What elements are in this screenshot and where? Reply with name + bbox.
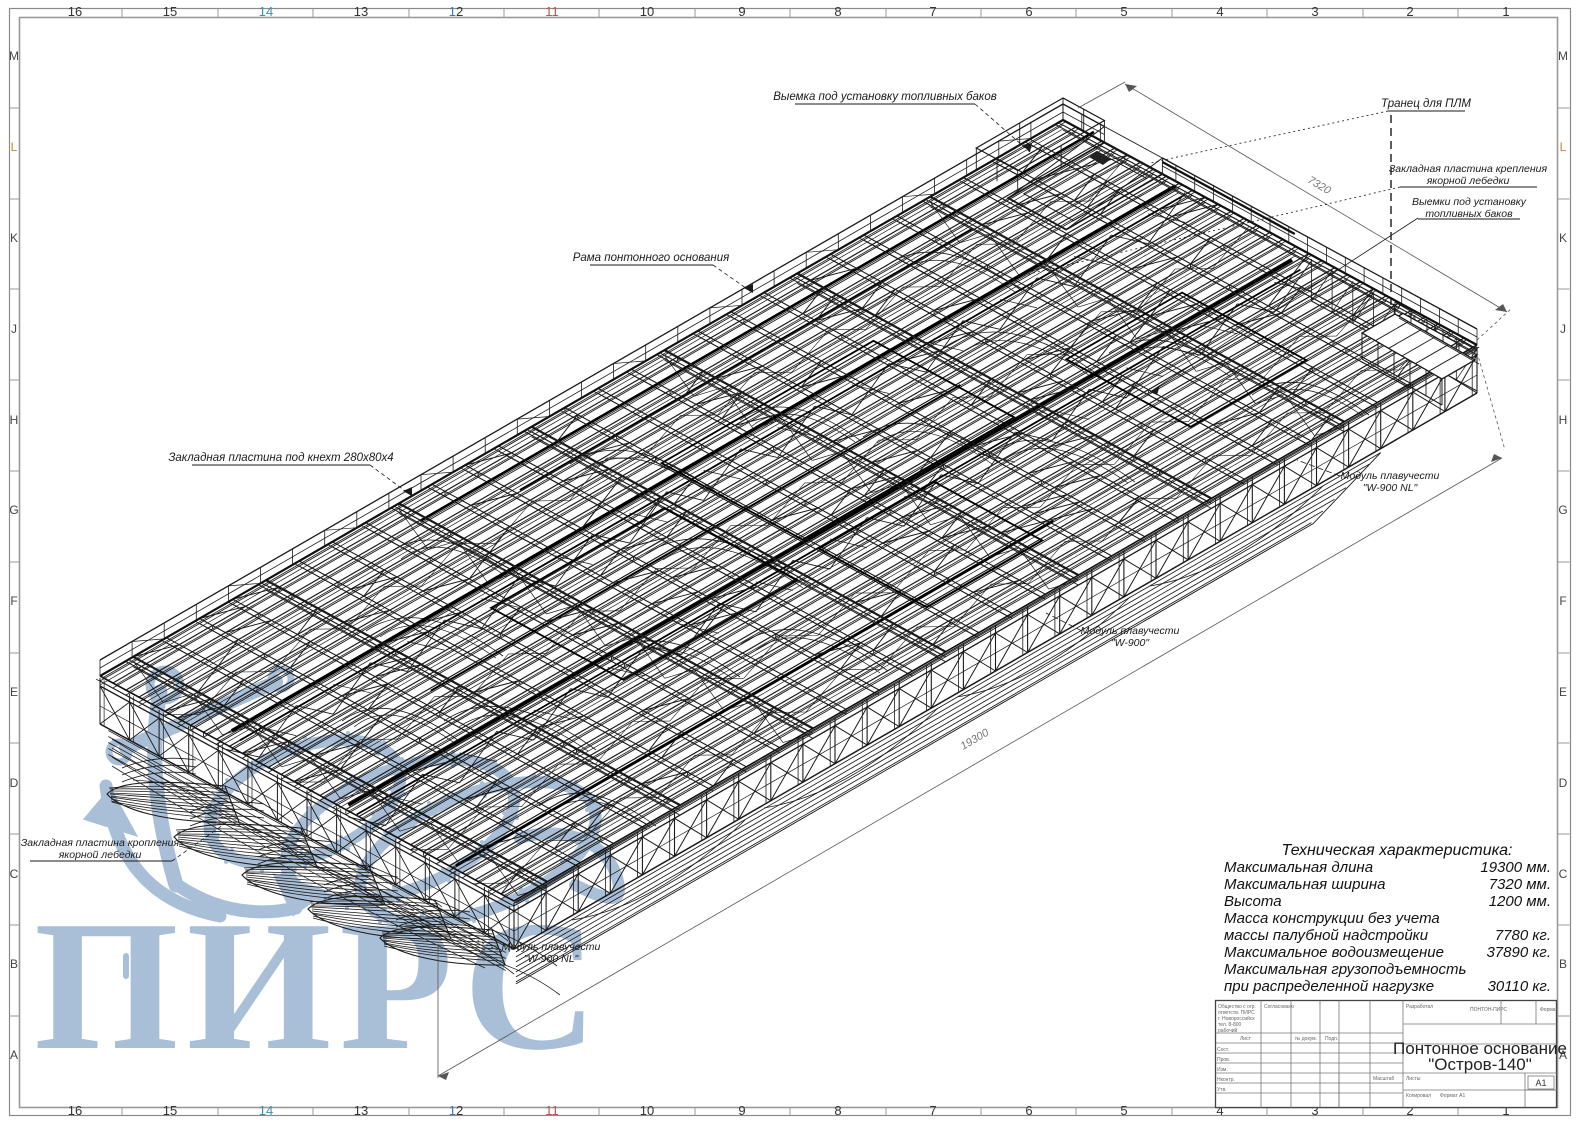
svg-text:4: 4 (1216, 4, 1223, 19)
svg-text:"Остров-140": "Остров-140" (1428, 1055, 1532, 1074)
svg-text:Масса конструкции без учета: Масса конструкции без учета (1224, 910, 1440, 927)
svg-text:Копировал: Копировал (1406, 1093, 1431, 1099)
svg-text:1200 мм.: 1200 мм. (1489, 893, 1551, 910)
svg-text:E: E (1559, 685, 1567, 699)
svg-text:B: B (1559, 957, 1567, 971)
svg-text:E: E (10, 685, 18, 699)
svg-text:Максимальная ширина: Максимальная ширина (1224, 876, 1385, 893)
svg-text:Модуль плавучести: Модуль плавучести (1341, 470, 1440, 482)
svg-text:Сост.: Сост. (1217, 1047, 1229, 1053)
svg-text:Закладная пластина кропления: Закладная пластина кропления (21, 837, 180, 849)
svg-text:30110 кг.: 30110 кг. (1488, 978, 1551, 995)
svg-text:Нконтр.: Нконтр. (1217, 1077, 1235, 1083)
svg-text:H: H (1559, 413, 1568, 427)
svg-text:Согласовано: Согласовано (1264, 1004, 1294, 1010)
svg-text:Формат: Формат (1540, 1007, 1558, 1013)
svg-text:А1: А1 (1535, 1078, 1546, 1088)
svg-text:8: 8 (834, 1103, 841, 1118)
svg-text:Масштаб: Масштаб (1373, 1076, 1395, 1082)
svg-text:г. Новороссийск: г. Новороссийск (1218, 1015, 1255, 1022)
svg-text:H: H (10, 413, 19, 427)
svg-text:9: 9 (738, 4, 745, 19)
svg-text:№ докум.: № докум. (1295, 1036, 1317, 1042)
svg-text:K: K (10, 231, 18, 245)
svg-text:9: 9 (738, 1103, 745, 1118)
svg-text:Транец для ПЛМ: Транец для ПЛМ (1381, 98, 1471, 110)
svg-text:при распределенной нагрузке: при распределенной нагрузке (1224, 978, 1434, 995)
svg-text:Модуль плавучести: Модуль плавучести (502, 941, 601, 953)
svg-text:Выемка под установку топливных: Выемка под установку топливных баков (773, 91, 997, 103)
svg-text:1: 1 (1502, 4, 1509, 19)
svg-text:11: 11 (545, 1103, 559, 1118)
svg-text:7: 7 (929, 4, 936, 19)
svg-text:5: 5 (1120, 4, 1127, 19)
svg-text:Изм.: Изм. (1217, 1067, 1228, 1073)
svg-text:14: 14 (259, 1103, 273, 1118)
svg-text:массы палубной надстройки: массы палубной надстройки (1224, 927, 1429, 944)
svg-text:2: 2 (1406, 4, 1413, 19)
svg-text:B: B (10, 957, 18, 971)
svg-text:Рама понтонного основания: Рама понтонного основания (573, 252, 730, 264)
svg-text:Техническая характеристика:: Техническая характеристика: (1282, 842, 1513, 859)
svg-text:L: L (11, 140, 18, 154)
svg-text:C: C (1559, 867, 1568, 881)
svg-text:Модуль плавучести: Модуль плавучести (1081, 625, 1180, 637)
svg-text:Максимальное водоизмещение: Максимальное водоизмещение (1224, 944, 1444, 961)
svg-text:12: 12 (449, 1103, 463, 1118)
svg-text:Формат А1: Формат А1 (1440, 1093, 1465, 1099)
svg-text:K: K (1559, 231, 1567, 245)
svg-text:Подп.: Подп. (1325, 1036, 1338, 1042)
svg-text:D: D (1559, 776, 1568, 790)
svg-text:5: 5 (1120, 1103, 1127, 1118)
svg-text:"W-900 NL": "W-900 NL" (524, 953, 580, 965)
svg-text:Утв.: Утв. (1217, 1087, 1227, 1093)
svg-text:Листы: Листы (1406, 1076, 1421, 1082)
svg-text:L: L (1560, 140, 1567, 154)
svg-text:13: 13 (354, 4, 368, 19)
svg-text:A: A (10, 1048, 18, 1062)
svg-text:"W-900": "W-900" (1111, 637, 1150, 649)
svg-text:11: 11 (545, 4, 559, 19)
svg-text:J: J (11, 322, 17, 336)
svg-text:16: 16 (68, 4, 82, 19)
svg-text:Максимальная длина: Максимальная длина (1224, 859, 1373, 876)
svg-text:Лист: Лист (1240, 1036, 1252, 1042)
svg-text:14: 14 (259, 4, 273, 19)
svg-text:"W-900 NL": "W-900 NL" (1363, 482, 1419, 494)
svg-text:M: M (9, 49, 19, 63)
svg-text:6: 6 (1025, 4, 1032, 19)
svg-text:Пров.: Пров. (1217, 1057, 1230, 1063)
svg-text:G: G (1558, 503, 1567, 517)
svg-text:8: 8 (834, 4, 841, 19)
svg-text:якорной лебедки: якорной лебедки (58, 849, 142, 861)
svg-text:D: D (10, 776, 19, 790)
svg-text:7780 кг.: 7780 кг. (1495, 927, 1551, 944)
svg-text:Выемки под установку: Выемки под установку (1412, 196, 1527, 208)
svg-text:якорной лебедки: якорной лебедки (1426, 175, 1510, 187)
svg-text:3: 3 (1311, 4, 1318, 19)
svg-text:F: F (10, 594, 17, 608)
svg-text:топливных баков: топливных баков (1425, 208, 1513, 220)
svg-text:19300 мм.: 19300 мм. (1480, 859, 1551, 876)
svg-text:10: 10 (640, 1103, 654, 1118)
svg-text:J: J (1560, 322, 1566, 336)
svg-text:Закладная пластина под кнехт 2: Закладная пластина под кнехт 280х80х4 (168, 452, 393, 464)
svg-text:C: C (10, 867, 19, 881)
svg-text:15: 15 (163, 4, 177, 19)
svg-text:37890 кг.: 37890 кг. (1486, 944, 1551, 961)
svg-text:10: 10 (640, 4, 654, 19)
svg-text:6: 6 (1025, 1103, 1032, 1118)
svg-text:Закладная пластина крепления: Закладная пластина крепления (1389, 163, 1548, 175)
svg-text:G: G (9, 503, 18, 517)
svg-text:рабочий: рабочий (1218, 1027, 1237, 1034)
svg-text:7320 мм.: 7320 мм. (1489, 876, 1551, 893)
svg-text:16: 16 (68, 1103, 82, 1118)
svg-text:13: 13 (354, 1103, 368, 1118)
svg-text:Разработал: Разработал (1406, 1004, 1433, 1010)
svg-text:12: 12 (449, 4, 463, 19)
svg-text:Высота: Высота (1224, 893, 1282, 910)
svg-text:ПОНТОН-ПИРС: ПОНТОН-ПИРС (1470, 1007, 1508, 1013)
svg-text:15: 15 (163, 1103, 177, 1118)
svg-text:F: F (1559, 594, 1566, 608)
svg-text:Максимальная грузоподъемность: Максимальная грузоподъемность (1224, 961, 1466, 978)
svg-text:M: M (1558, 49, 1568, 63)
svg-text:7: 7 (929, 1103, 936, 1118)
